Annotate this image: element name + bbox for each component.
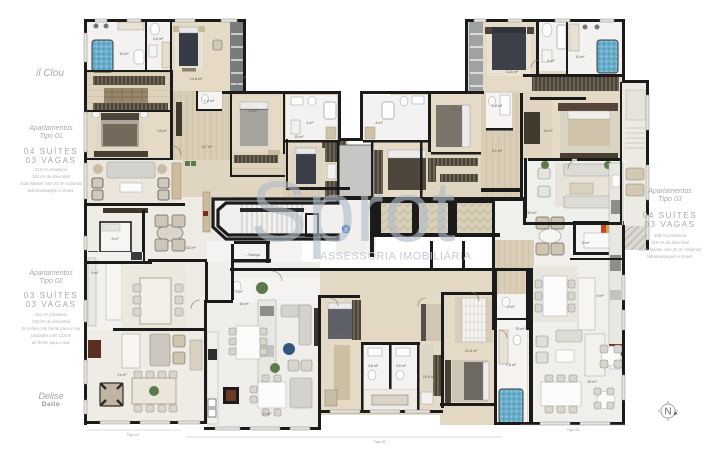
svg-text:11 m²: 11 m² [263, 412, 273, 416]
svg-text:151 m² privativos: 151 m² privativos [35, 312, 67, 317]
svg-text:2 m²: 2 m² [507, 305, 515, 309]
svg-text:11,6 m²: 11,6 m² [331, 327, 344, 331]
svg-text:ASSESSORIA IMOBILIÁRIA: ASSESSORIA IMOBILIÁRIA [320, 250, 472, 263]
svg-text:Tipo 03: Tipo 03 [658, 196, 681, 203]
svg-text:321 m² de área total: 321 m² de área total [32, 174, 70, 179]
svg-text:04 SUÍTES: 04 SUÍTES [643, 210, 697, 220]
svg-text:3 m²: 3 m² [111, 237, 119, 241]
svg-text:15 m²: 15 m² [294, 135, 304, 139]
svg-text:hidromassagem e closet.: hidromassagem e closet. [647, 254, 694, 259]
svg-text:50 m²: 50 m² [527, 211, 537, 215]
svg-text:03 VAGAS: 03 VAGAS [26, 156, 77, 165]
svg-text:03 VAGAS: 03 VAGAS [645, 220, 696, 229]
svg-text:Unidades com 13,8 m: Unidades com 13,8 m [31, 333, 72, 338]
svg-text:15,5 m²: 15,5 m² [423, 375, 436, 379]
svg-text:Tipo 02: Tipo 02 [39, 278, 62, 285]
svg-text:N: N [664, 407, 671, 418]
svg-text:Tipo 02: Tipo 02 [374, 440, 387, 444]
svg-text:14 m²: 14 m² [543, 129, 553, 133]
svg-text:Tipo 03: Tipo 03 [567, 428, 580, 432]
svg-text:2 m²: 2 m² [235, 290, 243, 294]
svg-text:52 m²: 52 m² [186, 246, 196, 250]
svg-text:9 m²: 9 m² [91, 271, 99, 275]
svg-text:Suíte Máster com 22 m² incluin: Suíte Máster com 22 m² incluindo [639, 247, 702, 252]
svg-text:3,6 m²: 3,6 m² [368, 364, 379, 368]
svg-text:Apartamentos: Apartamentos [28, 270, 73, 277]
svg-text:Tipo 01: Tipo 01 [127, 433, 140, 437]
svg-text:Tipo 01: Tipo 01 [39, 133, 62, 140]
svg-text:4,7 m²: 4,7 m² [202, 145, 213, 149]
svg-text:25 m²: 25 m² [587, 380, 597, 384]
svg-text:de frente para o mar: de frente para o mar [32, 340, 71, 345]
svg-text:244 m² de área total: 244 m² de área total [32, 319, 70, 324]
svg-text:14,6 m²: 14,6 m² [190, 77, 203, 81]
svg-text:14,6 m²: 14,6 m² [506, 70, 519, 74]
svg-text:1,8 m²: 1,8 m² [204, 99, 215, 103]
svg-text:5,1 m²: 5,1 m² [492, 149, 503, 153]
svg-text:1,8 m²: 1,8 m² [492, 104, 503, 108]
svg-text:12 m²: 12 m² [451, 108, 461, 112]
svg-text:hidromassagem e closet.: hidromassagem e closet. [28, 188, 75, 193]
svg-text:Apartamentos: Apartamentos [28, 125, 73, 132]
svg-text:7,5 m²: 7,5 m² [506, 363, 517, 367]
svg-text:10 m²: 10 m² [575, 55, 585, 59]
svg-text:11 m²: 11 m² [249, 109, 259, 113]
svg-text:4 m²: 4 m² [375, 121, 383, 125]
svg-text:9 m²: 9 m² [596, 294, 604, 298]
svg-text:4 m²: 4 m² [306, 121, 314, 125]
svg-text:il Clou: il Clou [36, 68, 64, 79]
svg-text:319 m² de área total: 319 m² de área total [651, 240, 689, 245]
svg-text:3,5 m²: 3,5 m² [153, 37, 164, 41]
svg-text:208 m² privativos: 208 m² privativos [654, 233, 686, 238]
svg-text:30 m²: 30 m² [239, 302, 249, 306]
svg-text:75 m²: 75 m² [515, 327, 525, 331]
svg-text:03 SUÍTES: 03 SUÍTES [24, 290, 78, 300]
svg-text:213 m² privativos: 213 m² privativos [35, 167, 67, 172]
svg-text:Sprot: Sprot [250, 164, 456, 260]
svg-text:Dallo: Dallo [42, 401, 60, 408]
svg-text:04 SUÍTES: 04 SUÍTES [24, 146, 78, 156]
svg-text:3x suítes com frente para o ma: 3x suítes com frente para o mar [21, 326, 81, 331]
svg-text:3,6 m²: 3,6 m² [396, 364, 407, 368]
svg-text:21,6 m²: 21,6 m² [465, 349, 478, 353]
svg-text:Apartamentos: Apartamentos [647, 188, 692, 195]
svg-text:Suíte Master com 22 m² incluin: Suíte Master com 22 m² incluindo [20, 181, 83, 186]
svg-text:14 m²: 14 m² [157, 129, 167, 133]
svg-text:03 VAGAS: 03 VAGAS [26, 300, 77, 309]
svg-text:Delise: Delise [38, 391, 63, 401]
svg-text:10 m²: 10 m² [119, 52, 129, 56]
svg-text:4 m²: 4 m² [547, 59, 555, 63]
svg-text:21 m²: 21 m² [117, 373, 127, 377]
svg-text:5 m²: 5 m² [582, 241, 590, 245]
